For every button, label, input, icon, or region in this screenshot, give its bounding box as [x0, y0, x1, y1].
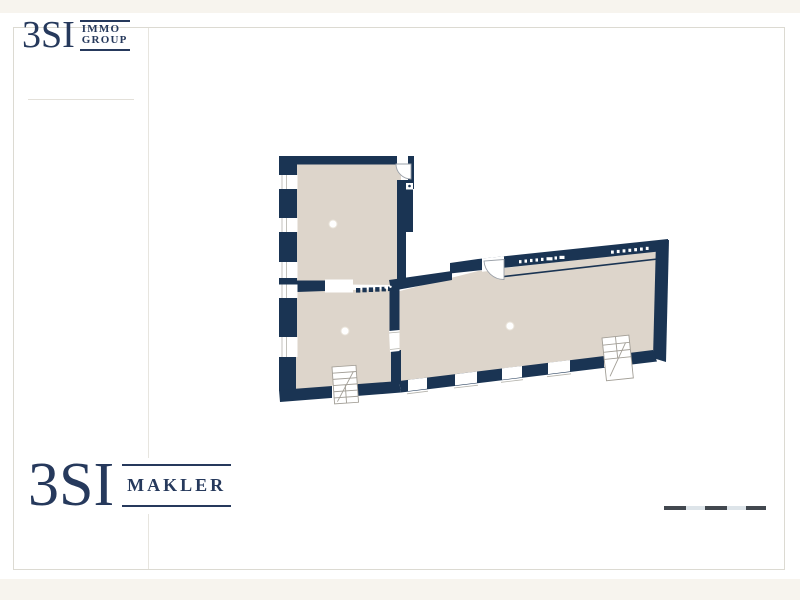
room-passage-opening: [325, 280, 353, 293]
header-logo-wordmark: IMMO GROUP: [80, 20, 130, 51]
scale-bar-segment: [727, 506, 746, 510]
junction-dot: [389, 286, 391, 288]
stair-icon-left: [332, 365, 359, 404]
door-opening-upper-room: [397, 156, 408, 165]
footer-logo-brand: 3SI: [28, 458, 114, 514]
room-floor-upper-left: [294, 161, 401, 285]
wall-room-divider: [297, 281, 325, 293]
footer-logo-wordmark: MAKLER: [122, 464, 231, 507]
scale-bar-segment: [686, 506, 705, 510]
wall-junction-step: [450, 259, 478, 274]
niche-dot: [408, 185, 411, 188]
stair-icon-right: [602, 335, 633, 381]
header-logo-brand: 3SI: [22, 18, 75, 52]
footer-logo: 3SI MAKLER: [20, 458, 239, 514]
header-logo: 3SI IMMO GROUP: [22, 18, 130, 52]
scale-bar-segment: [705, 506, 727, 510]
scale-bar-segment: [746, 506, 766, 510]
ceiling-light-icon: [506, 322, 514, 330]
header-logo-line1: IMMO: [82, 23, 120, 35]
header-logo-line2: GROUP: [82, 34, 128, 46]
ceiling-light-icon: [341, 327, 349, 335]
scale-bar-segment: [664, 506, 686, 510]
scale-bar: [664, 506, 766, 510]
ceiling-light-icon: [329, 220, 337, 228]
junction-dot: [384, 286, 386, 288]
